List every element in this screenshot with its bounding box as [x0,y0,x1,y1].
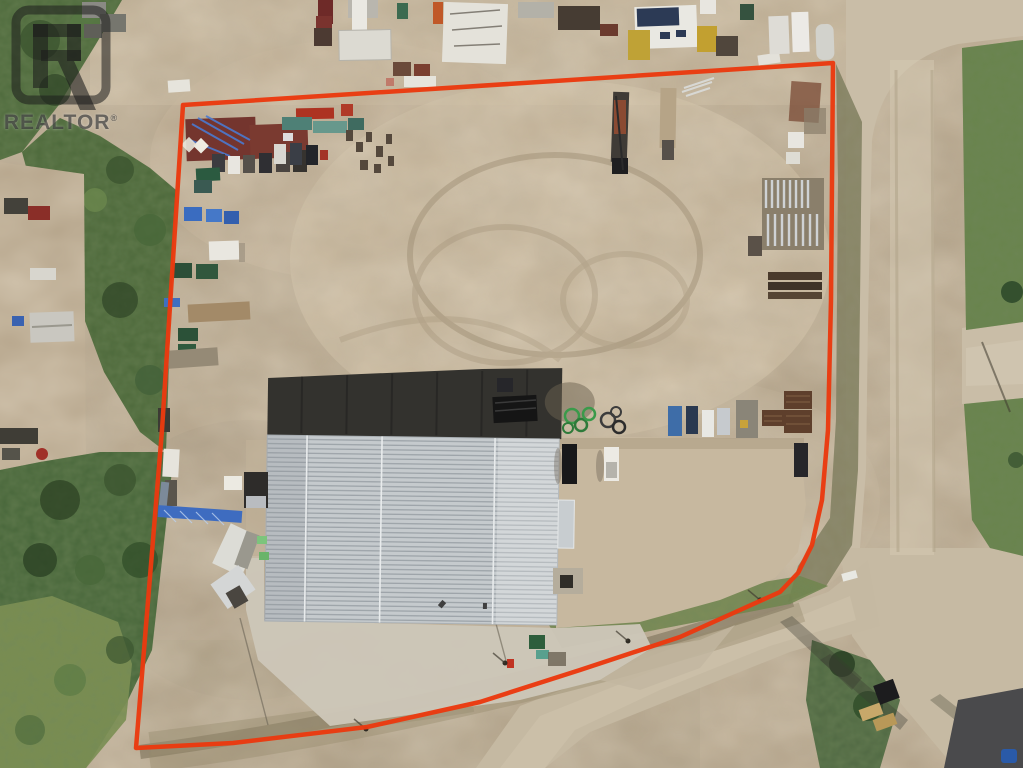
grass-strip-east [962,40,1023,556]
aerial-photo: REALTOR® [0,0,1023,768]
neighbor-yard-west [0,162,86,472]
gravel-road-crossing [962,318,1023,404]
shop-building [265,364,596,626]
roof-extension [558,500,575,548]
aerial-scene [0,0,1023,768]
